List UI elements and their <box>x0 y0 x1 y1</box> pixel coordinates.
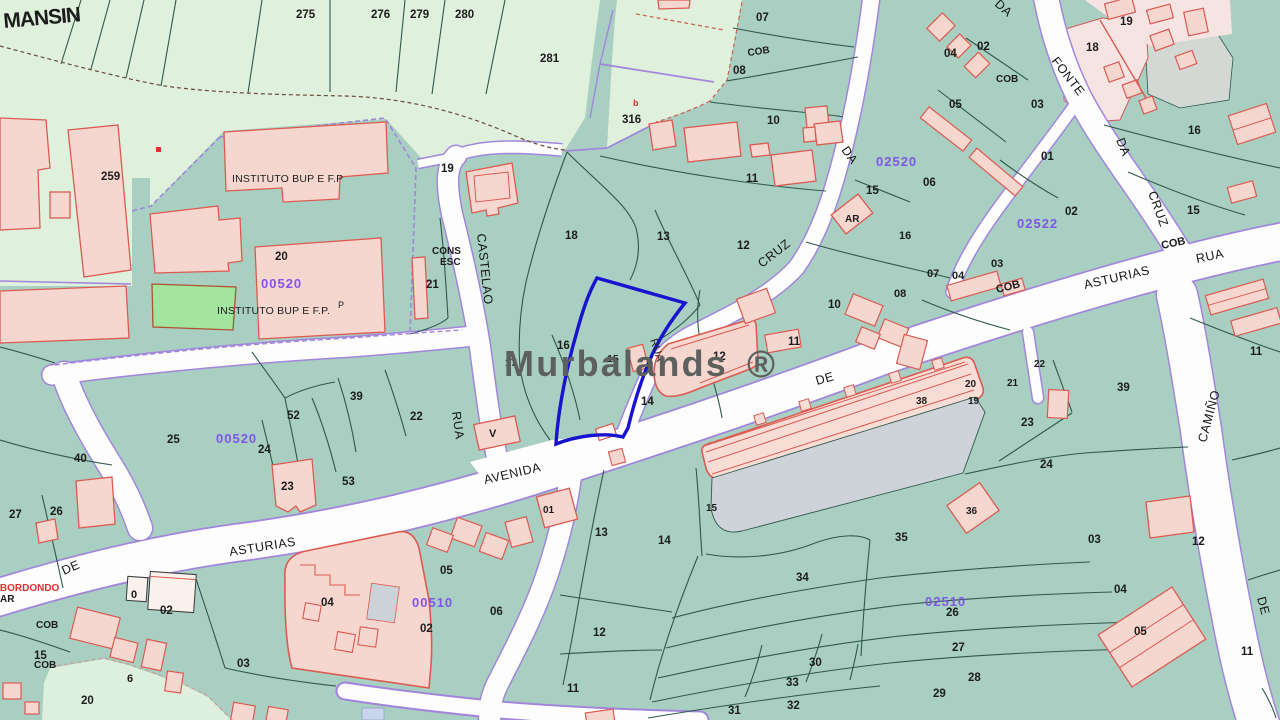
svg-text:24: 24 <box>1040 459 1053 471</box>
svg-text:Murbalands: Murbalands <box>504 343 728 384</box>
svg-text:02: 02 <box>977 41 990 53</box>
svg-text:280: 280 <box>455 9 474 21</box>
svg-text:27: 27 <box>952 642 965 654</box>
svg-text:18: 18 <box>565 230 578 242</box>
svg-text:11: 11 <box>746 173 759 185</box>
svg-text:04: 04 <box>944 48 957 60</box>
svg-text:14: 14 <box>658 535 671 547</box>
svg-text:11: 11 <box>1250 346 1263 358</box>
svg-text:19: 19 <box>441 163 454 175</box>
svg-text:11: 11 <box>788 336 801 348</box>
svg-text:11: 11 <box>567 683 580 695</box>
svg-text:02: 02 <box>160 605 173 617</box>
svg-text:36: 36 <box>966 506 978 517</box>
svg-text:52: 52 <box>287 410 300 422</box>
svg-text:REBORDONDO: REBORDONDO <box>0 583 60 594</box>
svg-text:18: 18 <box>1086 42 1099 54</box>
svg-text:INSTITUTO BUP E F.P.: INSTITUTO BUP E F.P. <box>217 305 330 317</box>
svg-text:25: 25 <box>167 434 180 446</box>
svg-text:INSTITUTO BUP E F.P: INSTITUTO BUP E F.P <box>232 173 343 185</box>
svg-text:AR: AR <box>845 214 860 225</box>
svg-text:21: 21 <box>426 279 439 291</box>
svg-text:26: 26 <box>50 506 63 518</box>
svg-text:04: 04 <box>1114 584 1127 596</box>
svg-text:28: 28 <box>968 672 981 684</box>
svg-text:34: 34 <box>796 572 809 584</box>
svg-text:ESC: ESC <box>440 257 461 268</box>
svg-text:39: 39 <box>1117 382 1130 394</box>
svg-text:316: 316 <box>622 114 641 126</box>
svg-text:00520: 00520 <box>216 431 257 446</box>
svg-text:05: 05 <box>1134 626 1147 638</box>
svg-text:19: 19 <box>1120 16 1133 28</box>
svg-text:13: 13 <box>595 527 608 539</box>
svg-text:276: 276 <box>371 9 390 21</box>
svg-text:14: 14 <box>641 396 654 408</box>
svg-text:6: 6 <box>127 673 133 685</box>
svg-text:04: 04 <box>321 597 334 609</box>
svg-text:20: 20 <box>275 251 288 263</box>
svg-text:33: 33 <box>786 677 799 689</box>
svg-text:10: 10 <box>828 299 841 311</box>
svg-text:24: 24 <box>258 444 271 456</box>
svg-text:39: 39 <box>350 391 363 403</box>
svg-text:AR: AR <box>0 594 15 605</box>
svg-text:16: 16 <box>1188 125 1201 137</box>
svg-text:23: 23 <box>281 481 294 493</box>
svg-text:27: 27 <box>9 509 22 521</box>
svg-text:20: 20 <box>81 695 94 707</box>
svg-text:COB: COB <box>996 74 1018 85</box>
svg-text:CONS: CONS <box>432 246 461 257</box>
svg-text:10: 10 <box>767 115 780 127</box>
svg-text:08: 08 <box>733 65 746 77</box>
svg-text:COB: COB <box>34 660 56 671</box>
svg-text:20: 20 <box>965 379 977 390</box>
svg-text:03: 03 <box>991 258 1003 270</box>
svg-text:02520: 02520 <box>876 154 917 169</box>
svg-text:12: 12 <box>1192 536 1205 548</box>
svg-text:02510: 02510 <box>925 594 966 609</box>
svg-text:06: 06 <box>490 606 503 618</box>
svg-text:29: 29 <box>933 688 946 700</box>
svg-text:04: 04 <box>952 270 965 282</box>
svg-text:08: 08 <box>894 288 906 300</box>
svg-text:07: 07 <box>756 12 769 24</box>
svg-text:P: P <box>338 300 344 310</box>
svg-text:0: 0 <box>131 589 137 601</box>
svg-text:06: 06 <box>923 177 936 189</box>
svg-text:02522: 02522 <box>1017 216 1058 231</box>
svg-text:02: 02 <box>420 623 433 635</box>
svg-text:15: 15 <box>866 185 879 197</box>
svg-text:53: 53 <box>342 476 355 488</box>
svg-text:01: 01 <box>1041 151 1054 163</box>
svg-text:16: 16 <box>899 230 911 242</box>
svg-text:38: 38 <box>916 396 928 407</box>
svg-text:00510: 00510 <box>412 595 453 610</box>
svg-text:15: 15 <box>706 503 718 514</box>
svg-text:22: 22 <box>410 411 423 423</box>
svg-text:13: 13 <box>657 231 670 243</box>
svg-text:00520: 00520 <box>261 276 302 291</box>
svg-text:07: 07 <box>927 268 939 280</box>
svg-text:30: 30 <box>809 657 822 669</box>
svg-text:40: 40 <box>74 453 87 465</box>
svg-text:31: 31 <box>728 705 741 717</box>
svg-text:01: 01 <box>543 505 555 516</box>
svg-text:12: 12 <box>593 627 606 639</box>
svg-text:275: 275 <box>296 9 316 21</box>
svg-text:279: 279 <box>410 9 429 21</box>
svg-text:®: ® <box>747 344 775 386</box>
svg-text:05: 05 <box>440 565 453 577</box>
svg-text:19: 19 <box>968 396 980 407</box>
svg-text:35: 35 <box>895 532 908 544</box>
svg-text:32: 32 <box>787 700 800 712</box>
svg-text:23: 23 <box>1021 417 1034 429</box>
svg-text:259: 259 <box>101 171 120 183</box>
svg-text:22: 22 <box>1034 359 1046 370</box>
svg-text:V: V <box>489 428 497 440</box>
svg-text:12: 12 <box>737 240 750 252</box>
svg-text:03: 03 <box>1088 534 1101 546</box>
svg-text:03: 03 <box>237 658 250 670</box>
svg-text:11: 11 <box>1241 646 1254 658</box>
svg-text:02: 02 <box>1065 206 1078 218</box>
svg-text:COB: COB <box>36 620 58 631</box>
svg-text:21: 21 <box>1007 378 1019 389</box>
svg-text:b: b <box>633 98 639 108</box>
svg-text:03: 03 <box>1031 99 1044 111</box>
svg-text:15: 15 <box>1187 205 1200 217</box>
svg-text:281: 281 <box>540 53 560 65</box>
svg-text:05: 05 <box>949 99 962 111</box>
